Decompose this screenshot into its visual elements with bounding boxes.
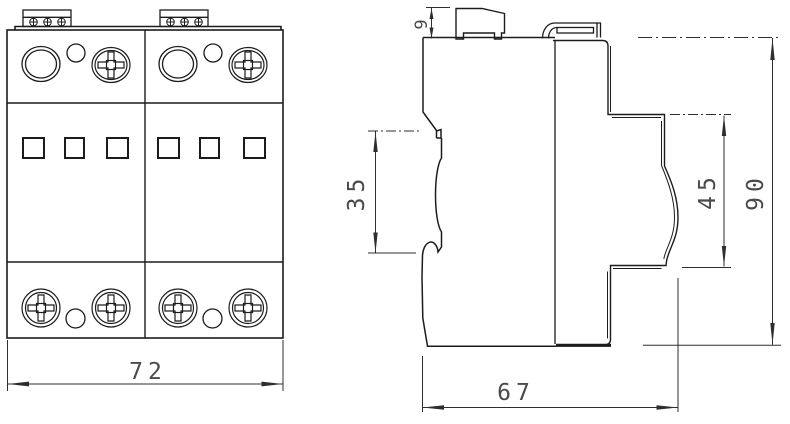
dim-label-front-section: 45 bbox=[695, 172, 721, 210]
dim-label-rail-recess: 35 bbox=[344, 174, 370, 212]
test-point-hole bbox=[66, 309, 222, 328]
dimension-rail-recess bbox=[368, 131, 420, 253]
housing-outline bbox=[422, 38, 556, 347]
retaining-clip bbox=[543, 23, 601, 39]
recess-inner-slant bbox=[425, 115, 436, 129]
front-profile-inner bbox=[608, 46, 675, 339]
dim-label-overall-depth: 67 bbox=[497, 380, 535, 406]
dim-label-front-width: 72 bbox=[129, 359, 167, 385]
front-profile-outer bbox=[553, 41, 678, 345]
technical-drawing: 72 9 35 bbox=[0, 0, 790, 424]
arrowhead bbox=[770, 38, 774, 60]
arrowhead bbox=[423, 405, 445, 409]
arrowhead bbox=[373, 233, 377, 254]
dimension-overall-depth bbox=[423, 278, 679, 412]
arrowhead bbox=[722, 116, 726, 137]
arrowhead bbox=[262, 382, 284, 387]
dim-label-terminal-height: 9 bbox=[412, 17, 432, 29]
front-view bbox=[7, 10, 283, 338]
arrowhead bbox=[8, 382, 30, 387]
arrowhead bbox=[657, 405, 679, 409]
indicator-window bbox=[23, 138, 265, 158]
terminal-screw-icon bbox=[30, 18, 203, 26]
arrowhead bbox=[430, 8, 434, 19]
top-terminal bbox=[456, 9, 505, 40]
phillips-screw-icon bbox=[92, 48, 267, 83]
arrowhead bbox=[722, 246, 726, 267]
arrowhead bbox=[373, 132, 377, 153]
side-view bbox=[422, 9, 678, 347]
arrowhead bbox=[770, 323, 774, 345]
dim-label-overall-height: 90 bbox=[743, 173, 769, 211]
